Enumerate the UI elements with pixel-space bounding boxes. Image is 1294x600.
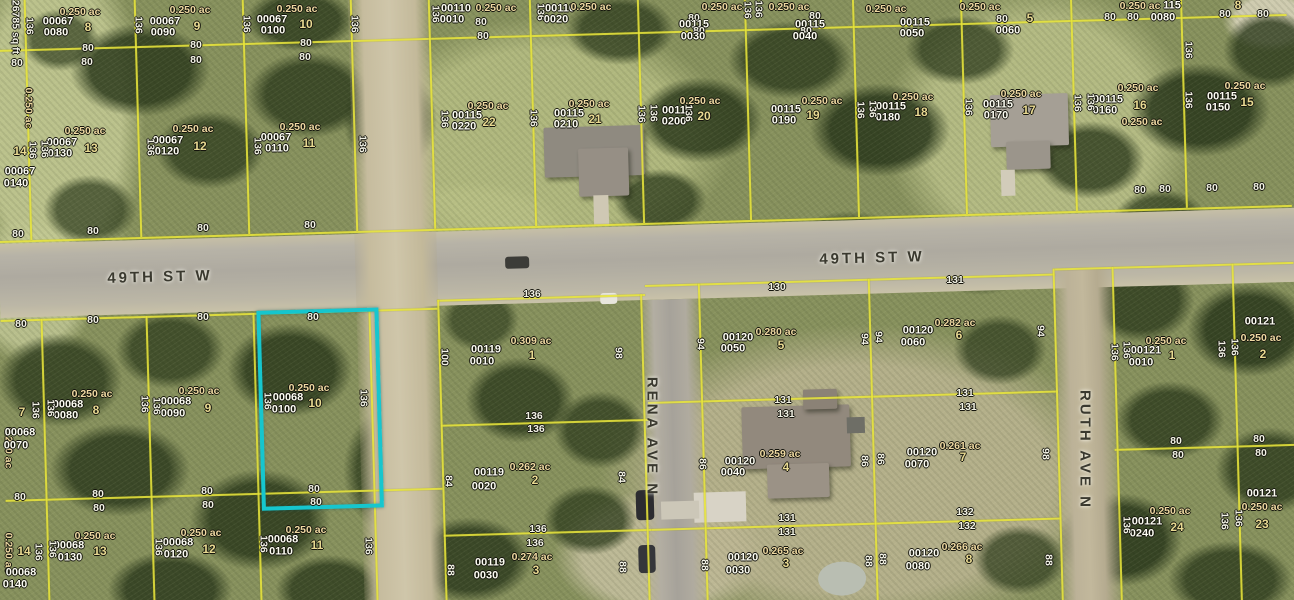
parcel-id-label: 0170 [984,111,1008,122]
dimension-label: 136 [1216,340,1227,358]
parcel-id-label: 0090 [151,28,175,39]
dimension-label: 80 [308,484,320,495]
parcel-id-label: 0080 [906,562,930,573]
parcel-id-label: 00121 [1247,489,1278,500]
dimension-label: 136 [33,543,44,561]
parcel-area-label: 0.250 ac [702,2,743,13]
parcel-area-label: 0.250 ac [571,2,612,13]
parcel-id-label: 00068 [161,397,192,408]
parcel-id-label: 0130 [58,553,82,564]
dimension-label: 136 [139,395,150,413]
parcel-area-label: 0.250 ac [1146,336,1187,347]
parcel-id-label: 0150 [1206,103,1230,114]
dimension-label: 80 [1253,434,1265,445]
parcel-id-label: 00120 [909,549,940,560]
parcel-id-label: 0010 [440,15,464,26]
parcel-id-label: 115 [1163,1,1181,12]
dimension-label: 80 [15,319,27,330]
dimension-label: 80 [82,43,94,54]
dimension-label: 136 [430,5,441,23]
parcel-area-label: 0.250 ac [23,88,34,129]
parcel-id-label: 0080 [1151,13,1175,24]
lot-number-label: 8 [966,553,973,565]
dimension-label: 136 [45,399,56,417]
parcel-id-label: 0030 [681,32,705,43]
parcel-area-label: 0.282 ac [935,318,976,329]
parcel-id-label: 00067 [5,167,36,178]
dimension-label: 86 [859,455,870,467]
dimension-label: 84 [616,471,627,483]
dimension-label: 136 [867,100,878,118]
dimension-label: 136 [357,135,368,153]
lot-number-label: 19 [806,109,819,121]
lot-number-label: 17 [1022,104,1035,116]
dimension-label: 136 [636,105,647,123]
dimension-label: 80 [1134,185,1146,196]
parcel-id-label: 0110 [269,547,293,558]
parcel-area-label: 0.259 ac [760,449,801,460]
dimension-label: 136 [963,98,974,116]
dimension-label: 136 [241,15,252,33]
lot-number-label: 7 [960,451,967,463]
parcel-area-label: 0.250 ac [1122,117,1163,128]
parcel-id-label: 00068 [54,541,85,552]
dimension-label: 88 [617,561,628,573]
dimension-label: 80 [307,312,319,323]
lot-number-label: 8 [1235,0,1242,11]
lot-number-label: 1 [529,349,536,361]
parcel-area-label: 0.250 ac [173,124,214,135]
lot-number-label: 23 [1255,518,1268,530]
dimension-label: 80 [1127,12,1139,23]
lot-number-label: 3 [783,557,790,569]
dimension-label: 80 [1206,183,1218,194]
parcel-id-label: 00121 [1245,317,1276,328]
parcel-id-label: 0180 [876,113,900,124]
dimension-label: 98 [1040,448,1051,460]
dimension-label: 136 [133,16,144,34]
dimension-label: 136 [683,104,694,122]
parcel-id-label: 00068 [273,393,304,404]
dimension-label: 80 [299,52,311,63]
parcel-id-label: 0120 [164,550,188,561]
dimension-label: 136 [1072,94,1083,112]
dimension-label: 136 [526,538,544,549]
dimension-label: 131 [777,409,795,420]
dimension-label: 80 [12,229,24,240]
dimension-label: 136 [855,101,866,119]
parcel-id-label: 0090 [161,409,185,420]
parcel-area-label: 0.250 ac [769,2,810,13]
dimension-label: 136 [648,104,659,122]
dimension-label: 88 [863,555,874,567]
parcel-id-label: 0110 [265,144,289,155]
parcel-id-label: 00068 [5,428,36,439]
dimension-label: 80 [300,38,312,49]
parcel-id-label: 0010 [1129,358,1153,369]
parcel-id-label: 0210 [554,120,578,131]
dimension-label: 86 [697,458,708,470]
lot-number-label: 21 [588,113,601,125]
parcel-id-label: 00120 [728,553,759,564]
dimension-label: 80 [1219,9,1231,20]
label-layer: 26785 sq ft1360.250 ac00067008088080800.… [0,0,1294,600]
parcel-id-label: 0100 [272,405,296,416]
lot-number-label: 5 [1027,12,1034,24]
dimension-label: 136 [27,141,38,159]
dimension-label: 131 [956,388,974,399]
dimension-label: 80 [310,497,322,508]
dimension-label: 80 [92,489,104,500]
lot-number-label: 8 [85,21,92,33]
dimension-label: 26785 sq ft [10,0,21,54]
dimension-label: 136 [363,537,374,555]
dimension-label: 136 [39,140,50,158]
dimension-label: 136 [527,424,545,435]
dimension-label: 136 [1183,91,1194,109]
dimension-label: 88 [1043,554,1054,566]
dimension-label: 136 [252,137,263,155]
parcel-id-label: 0220 [452,122,476,133]
parcel-area-label: 0.250 ac [476,3,517,14]
lot-number-label: 3 [533,564,540,576]
parcel-id-label: 00121 [1131,346,1162,357]
dimension-label: 131 [774,395,792,406]
parcel-area-label: 0.250 ac [960,2,1001,13]
lot-number-label: 2 [1260,348,1267,360]
lot-number-label: 14 [13,145,26,157]
dimension-label: 136 [358,389,369,407]
parcel-id-label: 0020 [544,15,568,26]
parcel-area-label: 0.250 ac [802,96,843,107]
dimension-label: 136 [753,0,764,18]
dimension-label: 80 [1253,182,1265,193]
lot-number-label: 4 [783,461,790,473]
dimension-label: 136 [145,138,156,156]
parcel-id-label: 0140 [4,179,28,190]
dimension-label: 80 [87,315,99,326]
lot-number-label: 5 [778,339,785,351]
dimension-label: 80 [304,220,316,231]
parcel-id-label: 0080 [54,411,78,422]
parcel-id-label: 00119 [471,345,501,356]
parcel-id-label: 0070 [905,460,929,471]
dimension-label: 136 [1121,516,1132,534]
dimension-label: 136 [1109,343,1120,361]
parcel-id-label: 0120 [155,147,179,158]
lot-number-label: 12 [193,140,206,152]
dimension-label: 136 [24,17,35,35]
parcel-id-label: 0020 [472,482,496,493]
dimension-label: 80 [475,17,487,28]
dimension-label: 88 [699,559,710,571]
lot-number-label: 11 [311,539,324,551]
dimension-label: 80 [190,40,202,51]
parcel-area-label: 0.250 ac [1120,1,1161,12]
parcel-id-label: 0080 [44,28,68,39]
dimension-label: 136 [258,535,269,553]
parcel-id-label: 0050 [721,344,745,355]
dimension-label: 136 [1085,93,1096,111]
dimension-label: 136 [525,411,543,422]
parcel-id-label: 0040 [793,32,817,43]
lot-number-label: 10 [299,18,312,30]
parcel-area-label: 0.250 ac [170,5,211,16]
dimension-label: 136 [153,538,164,556]
dimension-label: 100 [439,348,450,366]
parcel-id-label: 0070 [4,441,28,452]
dimension-label: 80 [1104,12,1116,23]
dimension-label: 136 [1121,341,1132,359]
lot-number-label: 12 [202,543,215,555]
parcel-area-label: 0.250 ac [65,126,106,137]
dimension-label: 80 [201,486,213,497]
dimension-label: 131 [778,513,796,524]
lot-number-label: 24 [1170,521,1183,533]
lot-number-label: 13 [93,545,106,557]
dimension-label: 94 [1035,325,1046,337]
lot-number-label: 22 [482,116,495,128]
parcel-id-label: 0140 [3,580,27,591]
dimension-label: 132 [958,521,976,532]
parcel-id-label: 0160 [1093,106,1117,117]
parcel-id-label: 0060 [901,338,925,349]
parcel-id-label: 00068 [163,538,194,549]
dimension-label: 136 [30,401,41,419]
dimension-label: 136 [529,524,547,535]
dimension-label: 84 [443,475,454,487]
dimension-label: 131 [946,275,964,286]
parcel-area-label: 0.265 ac [763,546,804,557]
parcel-id-label: 0130 [48,149,72,160]
parcel-area-label: 0.262 ac [510,462,551,473]
parcel-id-label: 00119 [474,468,504,479]
dimension-label: 80 [197,312,209,323]
parcel-id-label: 0060 [996,26,1020,37]
dimension-label: 136 [47,540,58,558]
lot-number-label: 16 [1133,99,1146,111]
parcel-area-label: 0.250 ac [866,4,907,15]
street-name-label: 49TH ST W [819,249,925,267]
dimension-label: 94 [695,338,706,350]
dimension-label: 80 [190,55,202,66]
parcel-area-label: 0.274 ac [512,552,553,563]
parcel-id-label: 00119 [475,558,505,569]
dimension-label: 86 [875,453,886,465]
dimension-label: 80 [1159,184,1171,195]
lot-number-label: 6 [956,329,963,341]
dimension-label: 80 [11,58,23,69]
dimension-label: 88 [877,553,888,565]
lot-number-label: 14 [17,545,30,557]
dimension-label: 131 [959,402,977,413]
dimension-label: 80 [197,223,209,234]
lot-number-label: 15 [1240,96,1253,108]
lot-number-label: 8 [93,404,100,416]
parcel-area-label: 0.309 ac [511,336,552,347]
dimension-label: 136 [151,397,162,415]
dimension-label: 80 [1255,448,1267,459]
dimension-label: 136 [439,110,450,128]
dimension-label: 80 [81,57,93,68]
parcel-id-label: 0100 [261,26,285,37]
dimension-label: 136 [528,109,539,127]
dimension-label: 88 [445,564,456,576]
dimension-label: 94 [873,331,884,343]
lot-number-label: 2 [532,474,539,486]
parcel-area-label: 0.250 ac [1242,502,1283,513]
parcel-id-label: 00068 [268,535,299,546]
dimension-label: 80 [1172,450,1184,461]
dimension-label: 80 [1257,9,1269,20]
parcel-area-label: 0.250 ac [1118,83,1159,94]
dimension-label: 136 [523,289,541,300]
parcel-id-label: 0030 [726,566,750,577]
dimension-label: 131 [778,527,796,538]
parcel-area-label: 0.266 ac [942,542,983,553]
parcel-id-label: 00120 [907,448,938,459]
dimension-label: 80 [14,492,26,503]
lot-number-label: 11 [303,137,316,149]
dimension-label: 130 [768,282,786,293]
parcel-area-label: 0.250 ac [1241,333,1282,344]
parcel-id-label: 0190 [772,116,796,127]
street-name-label: RENA AVE N [645,377,660,497]
dimension-label: 136 [1183,41,1194,59]
parcel-id-label: 00121 [1132,517,1163,528]
lot-number-label: 18 [914,106,927,118]
lot-number-label: 7 [19,406,26,418]
parcel-id-label: 0040 [721,468,745,479]
parcel-area-label: 0.280 ac [756,327,797,338]
dimension-label: 80 [93,503,105,514]
dimension-label: 132 [956,507,974,518]
dimension-label: 94 [859,333,870,345]
dimension-label: 80 [87,226,99,237]
dimension-label: 136 [742,1,753,19]
aerial-parcel-map: 26785 sq ft1360.250 ac00067008088080800.… [0,0,1294,600]
lot-number-label: 1 [1169,349,1176,361]
parcel-id-label: 0050 [900,29,924,40]
street-name-label: 49TH ST W [107,268,213,286]
dimension-label: 136 [349,15,360,33]
lot-number-label: 20 [697,110,710,122]
dimension-label: 80 [1170,436,1182,447]
parcel-id-label: 00068 [6,568,37,579]
lot-number-label: 9 [205,402,212,414]
parcel-id-label: 0030 [474,571,498,582]
dimension-label: 80 [202,500,214,511]
parcel-id-label: 00120 [903,326,934,337]
lot-number-label: 9 [194,20,201,32]
parcel-id-label: 0240 [1130,529,1154,540]
lot-number-label: 13 [84,142,97,154]
parcel-id-label: 0010 [470,357,494,368]
lot-number-label: 10 [308,397,321,409]
street-name-label: RUTH AVE N [1078,390,1093,510]
dimension-label: 80 [477,31,489,42]
dimension-label: 80 [996,14,1008,25]
dimension-label: 98 [613,347,624,359]
dimension-label: 136 [1229,338,1240,356]
dimension-label: 136 [1219,512,1230,530]
dimension-label: 136 [262,392,273,410]
